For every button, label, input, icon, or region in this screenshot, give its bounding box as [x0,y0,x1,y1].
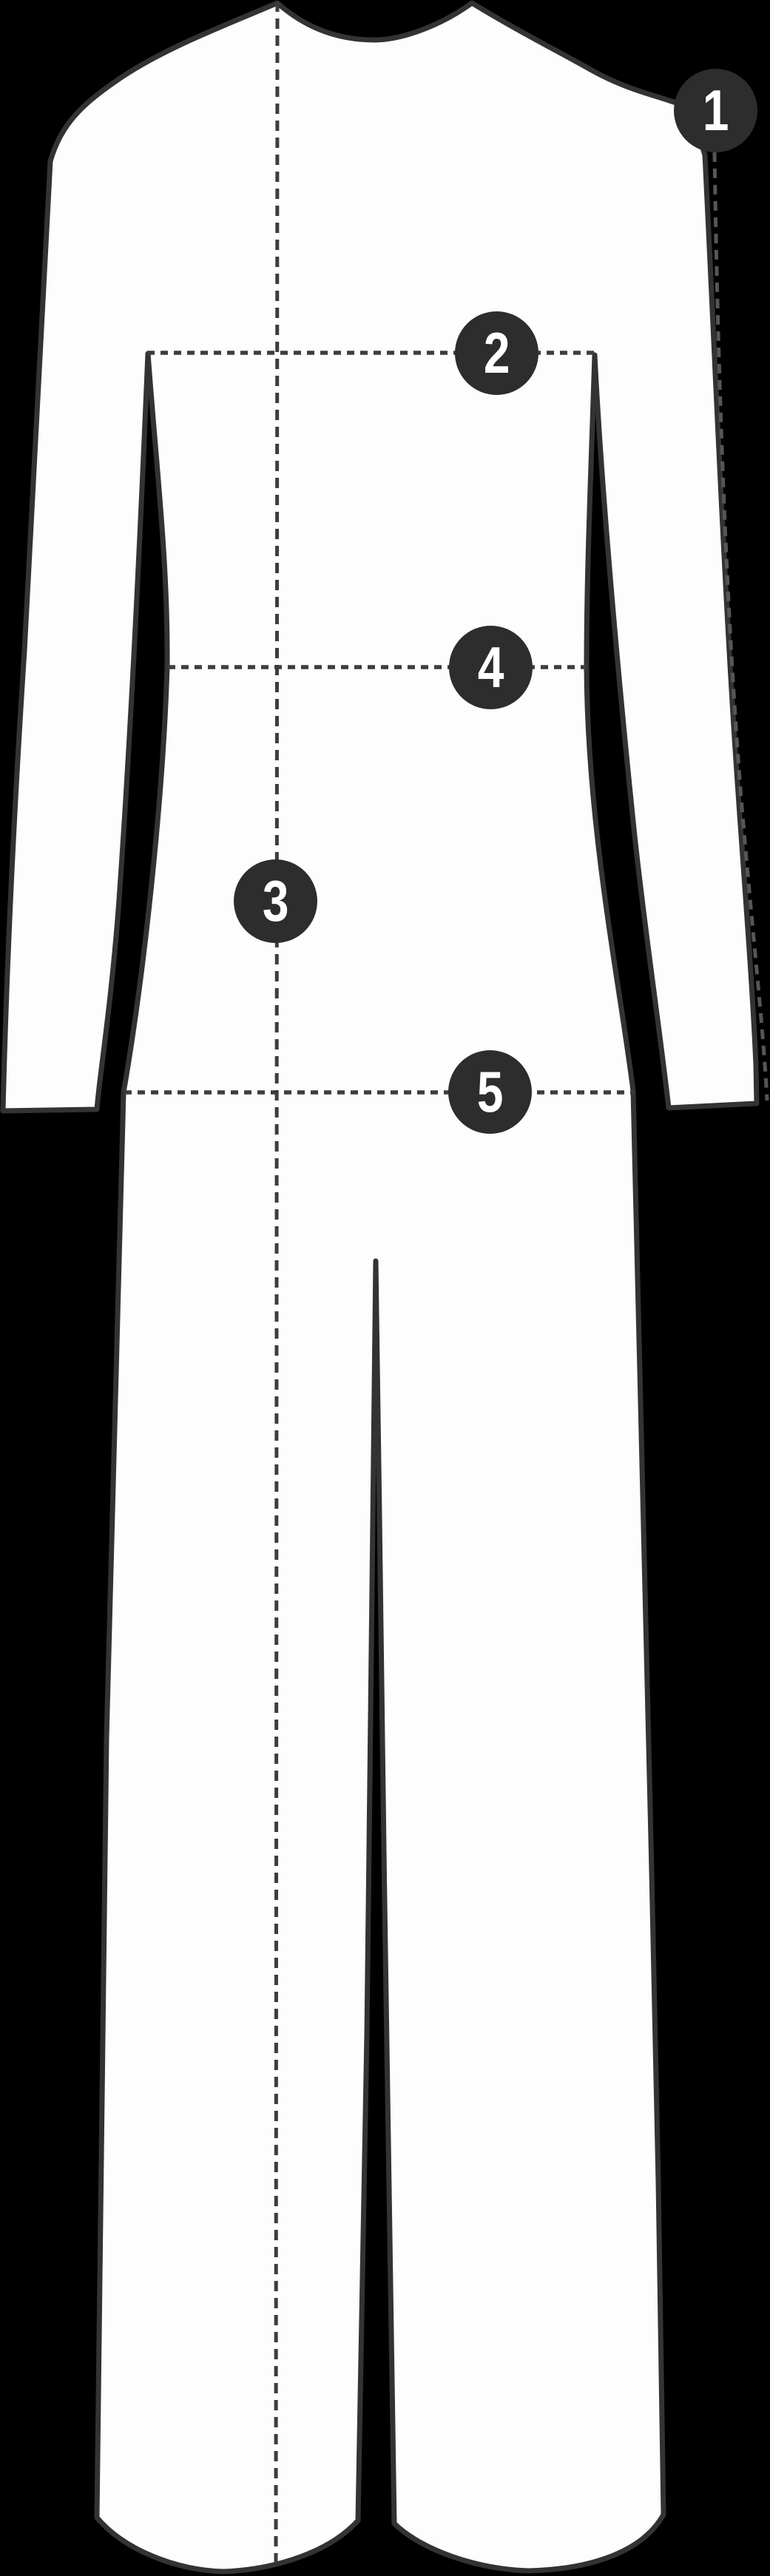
marker-1-shoulder-sleeve: 1 [674,69,757,152]
marker-4-waist: 4 [449,626,533,709]
garment-outline-svg [0,0,770,2576]
marker-2-chest: 2 [455,311,538,395]
marker-3-height: 3 [234,859,317,943]
marker-5-label: 5 [477,1063,503,1120]
marker-3-label: 3 [263,872,288,930]
marker-1-label: 1 [703,81,729,139]
marker-2-label: 2 [484,324,510,382]
marker-5-hip: 5 [448,1050,532,1134]
measurement-diagram: 1 2 3 4 5 [0,0,770,2576]
marker-4-label: 4 [478,638,504,696]
jumpsuit-silhouette [3,3,757,2572]
